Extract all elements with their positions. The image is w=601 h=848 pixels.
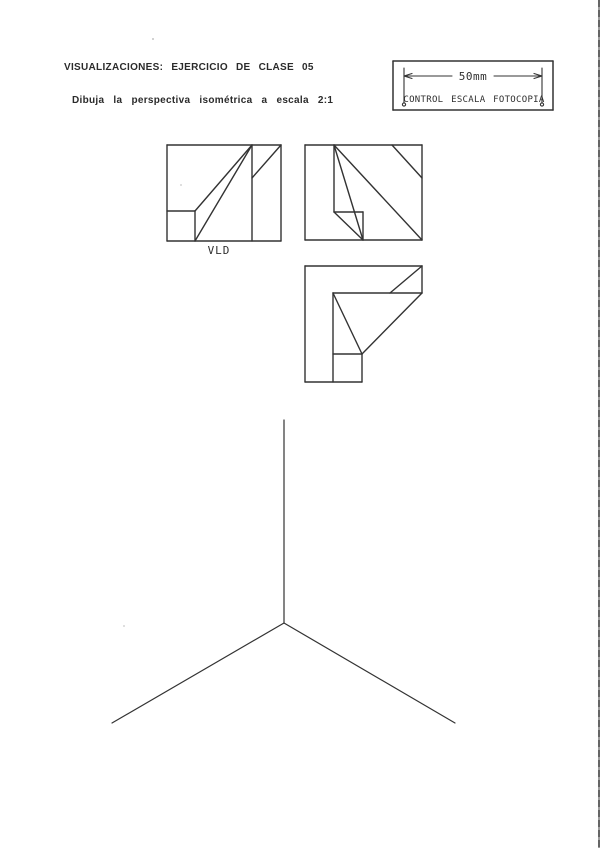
- scanned-worksheet-page: VISUALIZACIONES: EJERCICIO DE CLASE 05 D…: [0, 0, 601, 848]
- ink-drawing-svg: [0, 0, 601, 848]
- orthographic-view-front: [167, 145, 281, 241]
- photocopy-scale-control-caption: CONTROL ESCALA FOTOCOPIA: [403, 95, 544, 105]
- scan-speck: [123, 625, 125, 627]
- dimension-label-50mm: 50mm: [459, 70, 488, 83]
- orthographic-view-top: [305, 266, 422, 382]
- scan-speck: [152, 38, 154, 40]
- isometric-axes: [112, 420, 455, 723]
- scanner-edge-artifact: [598, 0, 600, 848]
- orthographic-view-side: [305, 145, 422, 240]
- scan-speck: [180, 184, 182, 186]
- front-view-label-vld: VLD: [208, 244, 231, 257]
